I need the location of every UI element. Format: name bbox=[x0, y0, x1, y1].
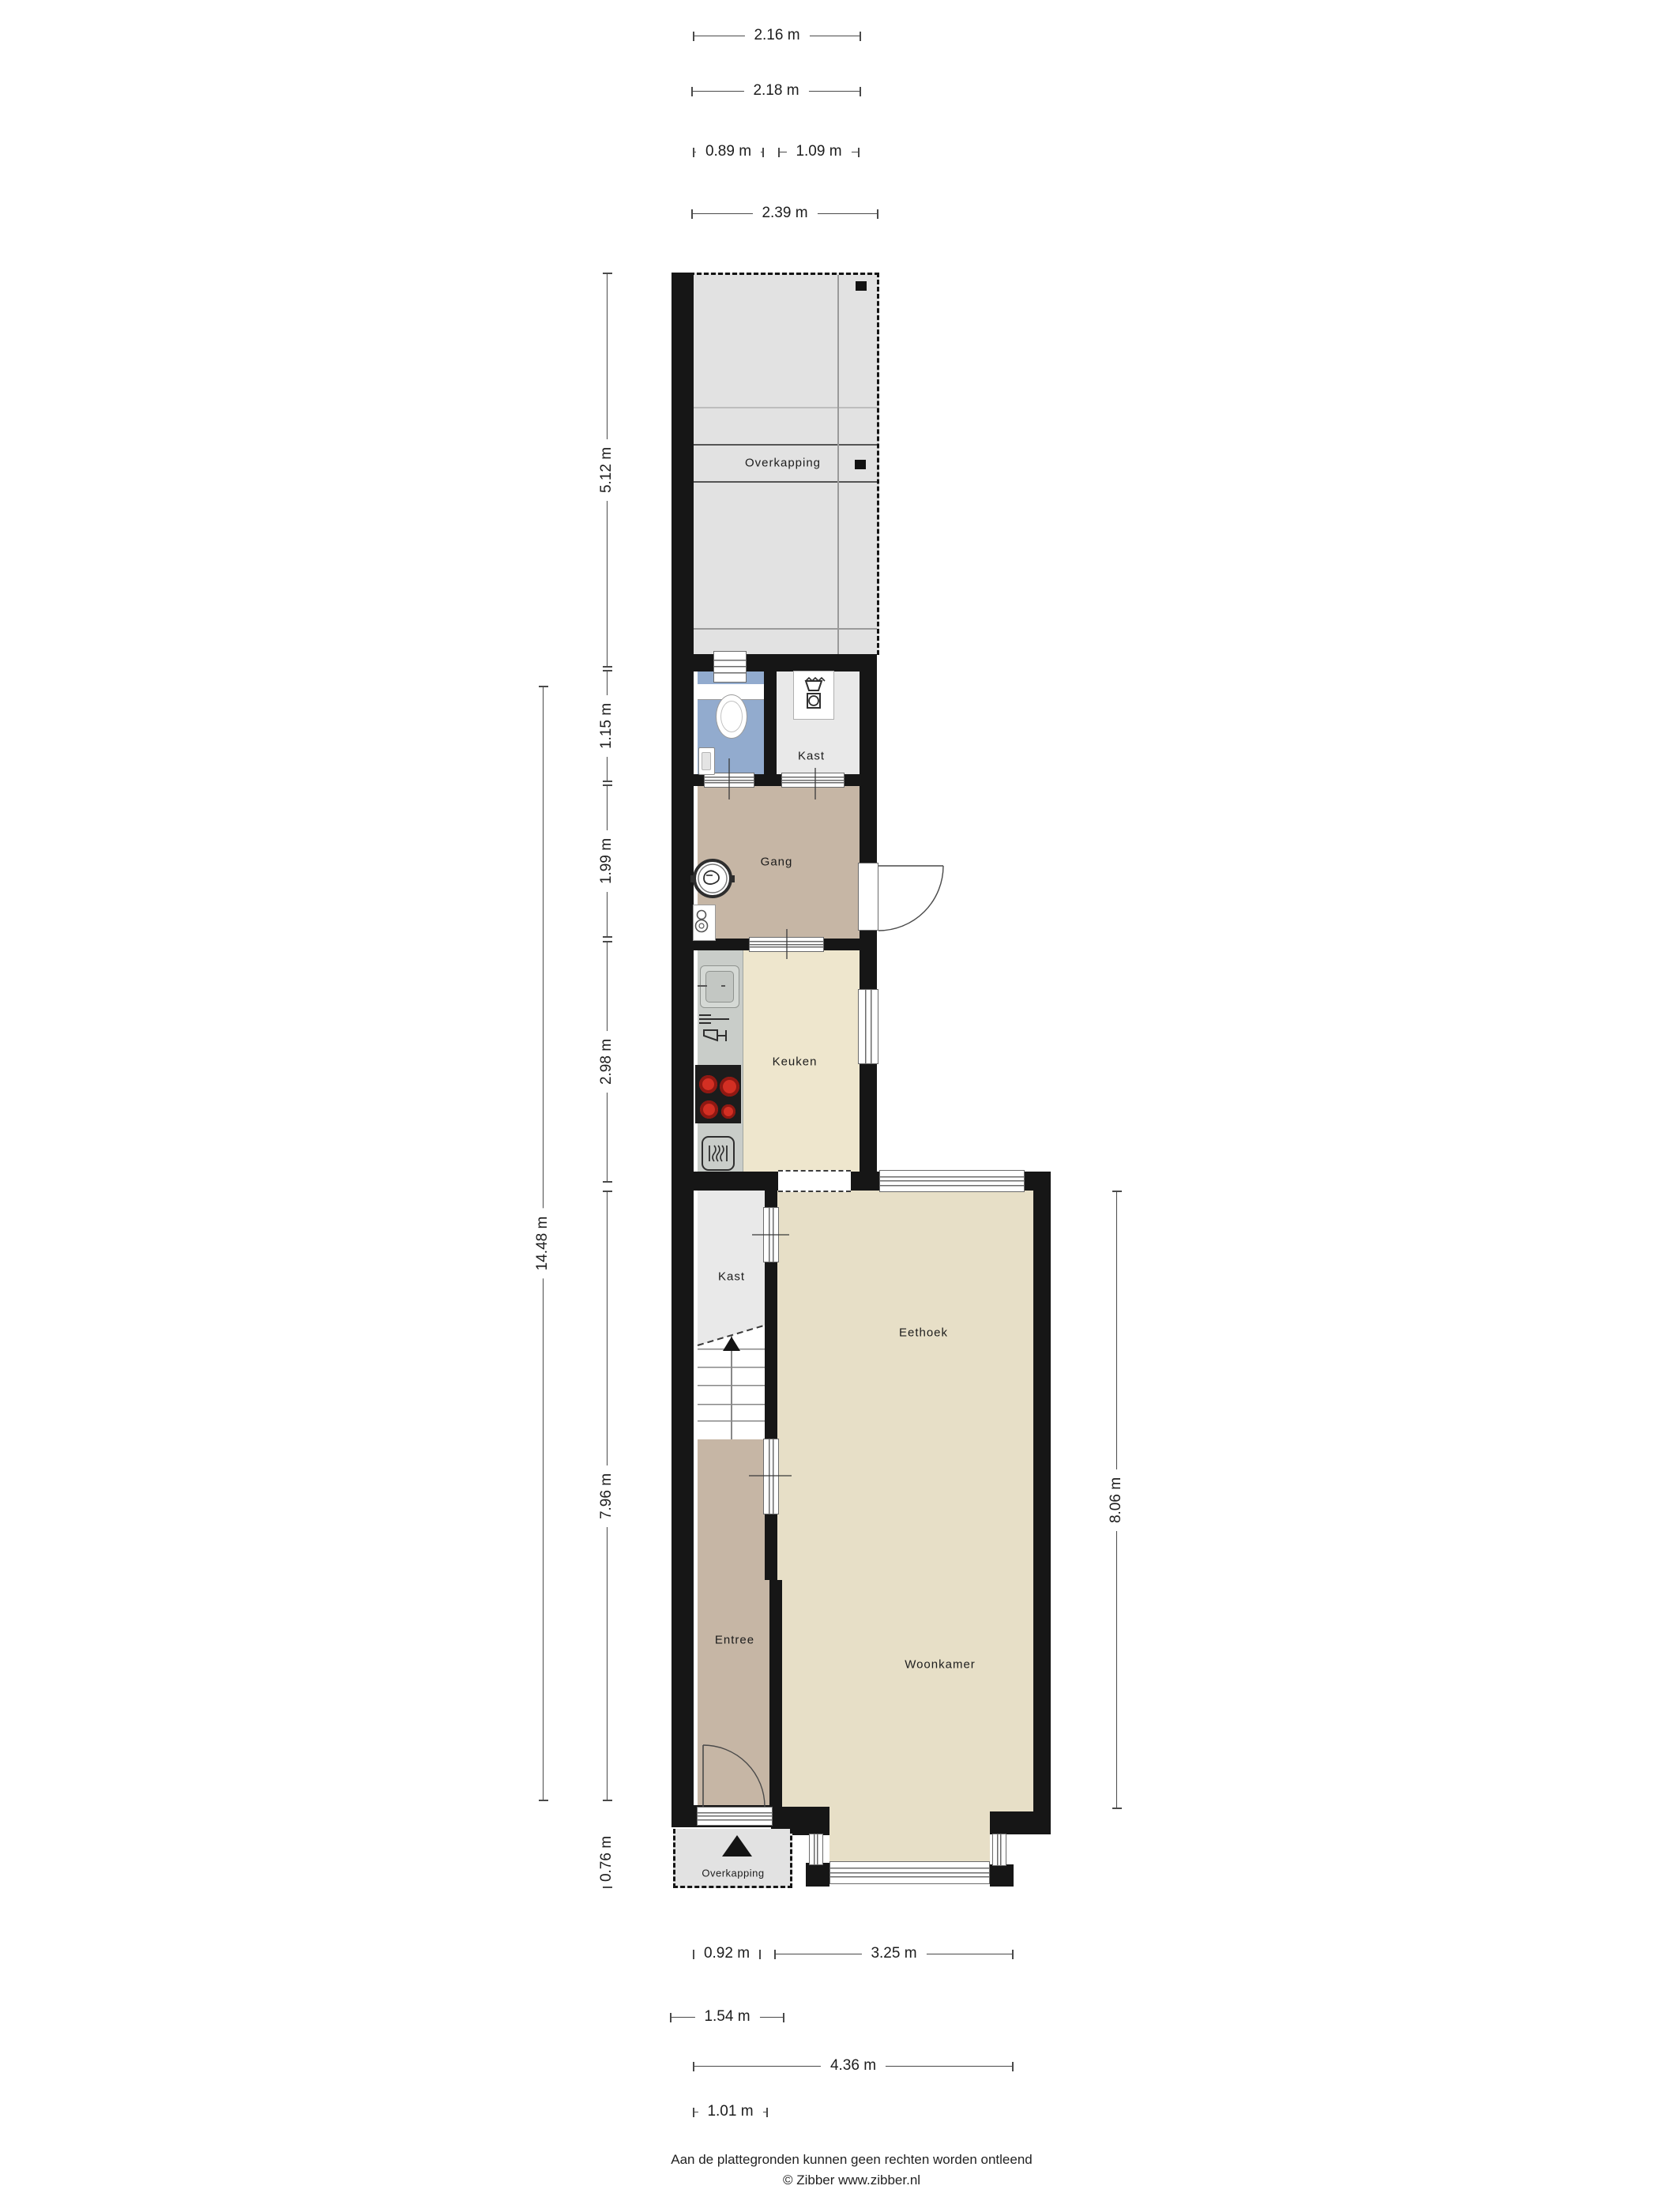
floorplan-canvas: Overkapping Kast Gang Keuken Kast Eethoe… bbox=[0, 0, 1659, 2212]
canopy-post bbox=[856, 281, 867, 291]
wall-left-exterior bbox=[671, 273, 694, 1827]
front-door-sill bbox=[697, 1807, 773, 1826]
dimension-left-total: 14.48 m bbox=[543, 686, 544, 1801]
dimension-bottom-5: 1.01 m bbox=[693, 2112, 768, 2112]
room-label-kast-top: Kast bbox=[798, 750, 825, 763]
dimension-label: 1.01 m bbox=[698, 2103, 762, 2120]
window-bay-right bbox=[992, 1834, 1006, 1866]
window-bay-left bbox=[809, 1834, 823, 1865]
room-label-gang: Gang bbox=[761, 856, 793, 869]
room-entree-floor bbox=[698, 1439, 771, 1807]
dimension-label: 1.15 m bbox=[598, 695, 615, 757]
meter-cabinet-icon bbox=[693, 905, 716, 941]
kitchen-sink-icon bbox=[700, 965, 739, 1008]
room-label-overkapping-top: Overkapping bbox=[745, 457, 821, 470]
room-label-eethoek: Eethoek bbox=[899, 1326, 948, 1340]
canopy-bottom-area bbox=[673, 1829, 792, 1888]
canopy-divider-line bbox=[690, 628, 877, 630]
room-label-overkapping-bottom: Overkapping bbox=[702, 1868, 764, 1879]
footer-credit: © Zibber www.zibber.nl bbox=[783, 2172, 920, 2188]
wall-bay-right-step bbox=[990, 1811, 1051, 1834]
dimension-label: 0.76 m bbox=[598, 1827, 615, 1889]
dimension-label: 1.99 m bbox=[598, 830, 615, 892]
window-eethoek-top bbox=[879, 1170, 1025, 1192]
door-kast-top bbox=[781, 773, 845, 788]
back-door-arc bbox=[878, 866, 943, 931]
dimension-top-4: 1.09 m bbox=[778, 152, 860, 152]
washing-machine-icon bbox=[794, 671, 833, 719]
dimension-label: 14.48 m bbox=[534, 1209, 551, 1279]
dimension-top-5: 2.39 m bbox=[691, 213, 878, 214]
canopy-divider-line bbox=[690, 481, 877, 483]
wall-right-lower-exterior bbox=[1033, 1172, 1051, 1834]
dimension-left-6: 0.76 m bbox=[607, 1829, 608, 1888]
room-living-floor bbox=[777, 1189, 1033, 1834]
hand-basin-icon bbox=[698, 747, 715, 775]
room-label-kast-mid: Kast bbox=[718, 1270, 745, 1284]
room-label-entree: Entree bbox=[715, 1634, 754, 1647]
room-living-bay-floor bbox=[829, 1834, 990, 1863]
cooktop-icon bbox=[695, 1065, 741, 1123]
toilet-bowl-inner bbox=[720, 701, 743, 732]
dimension-left-4: 2.98 m bbox=[607, 941, 608, 1183]
washing-machine-cabinet bbox=[793, 671, 834, 720]
window-canopy-toilet bbox=[713, 651, 747, 683]
door-gang-keuken bbox=[749, 937, 824, 952]
dimension-label: 0.89 m bbox=[696, 143, 761, 160]
dimension-label: 7.96 m bbox=[598, 1465, 615, 1526]
dimension-label: 2.39 m bbox=[752, 205, 817, 222]
dimension-top-2: 2.18 m bbox=[691, 91, 861, 92]
room-label-woonkamer: Woonkamer bbox=[905, 1658, 976, 1672]
wall-bay-right-corner bbox=[990, 1864, 1014, 1887]
dimension-top-3: 0.89 m bbox=[693, 152, 764, 152]
window-bay-front bbox=[829, 1861, 990, 1884]
dimension-label: 1.54 m bbox=[694, 2008, 759, 2026]
dimension-left-5: 7.96 m bbox=[607, 1191, 608, 1801]
dishwasher-icon bbox=[698, 1012, 732, 1044]
dimension-label: 2.98 m bbox=[598, 1031, 615, 1093]
dimension-left-3: 1.99 m bbox=[607, 784, 608, 938]
window-kast-eethoek bbox=[763, 1207, 779, 1262]
canopy-divider-line bbox=[690, 444, 877, 446]
footer-disclaimer: Aan de plattegronden kunnen geen rechten… bbox=[671, 2152, 1032, 2168]
dimension-left-1: 5.12 m bbox=[607, 273, 608, 668]
canopy-post bbox=[855, 460, 866, 469]
dimension-label: 8.06 m bbox=[1108, 1469, 1125, 1530]
dimension-bottom-2: 3.25 m bbox=[774, 1954, 1014, 1954]
room-label-keuken: Keuken bbox=[773, 1055, 818, 1069]
dimension-label: 1.09 m bbox=[786, 143, 851, 160]
dimension-bottom-4: 4.36 m bbox=[693, 2066, 1014, 2067]
glass-entree-woonkamer bbox=[763, 1439, 779, 1514]
dimension-label: 5.12 m bbox=[598, 439, 615, 501]
dimension-top-1: 2.16 m bbox=[693, 36, 861, 36]
dimension-right-1: 8.06 m bbox=[1116, 1191, 1117, 1809]
central-heating-boiler-icon bbox=[690, 856, 735, 901]
wall-bay-left-corner bbox=[806, 1863, 829, 1887]
dimension-bottom-3: 1.54 m bbox=[670, 2017, 784, 2018]
dimension-left-2: 1.15 m bbox=[607, 670, 608, 782]
dimension-label: 0.92 m bbox=[694, 1945, 759, 1962]
dimension-label: 2.16 m bbox=[744, 27, 809, 44]
dimension-bottom-1: 0.92 m bbox=[693, 1954, 761, 1954]
door-back-opening bbox=[858, 863, 878, 931]
wall-toilet-kast-divider bbox=[764, 669, 777, 784]
room-kast-mid-floor bbox=[698, 1191, 766, 1345]
oven-icon bbox=[701, 1135, 735, 1172]
dimension-label: 3.25 m bbox=[861, 1945, 926, 1962]
wall-toilet-gang bbox=[671, 774, 877, 786]
passage-keuken-eethoek bbox=[778, 1170, 851, 1192]
entrance-arrow-icon bbox=[722, 1835, 752, 1856]
canopy-divider-line bbox=[837, 275, 839, 655]
dimension-label: 4.36 m bbox=[821, 2057, 886, 2075]
wall-entree-woonkamer-lower bbox=[769, 1580, 782, 1807]
window-keuken bbox=[858, 989, 878, 1064]
dimension-label: 2.18 m bbox=[743, 82, 808, 100]
stairs-up-arrow bbox=[723, 1337, 740, 1351]
canopy-divider-line bbox=[690, 407, 877, 408]
